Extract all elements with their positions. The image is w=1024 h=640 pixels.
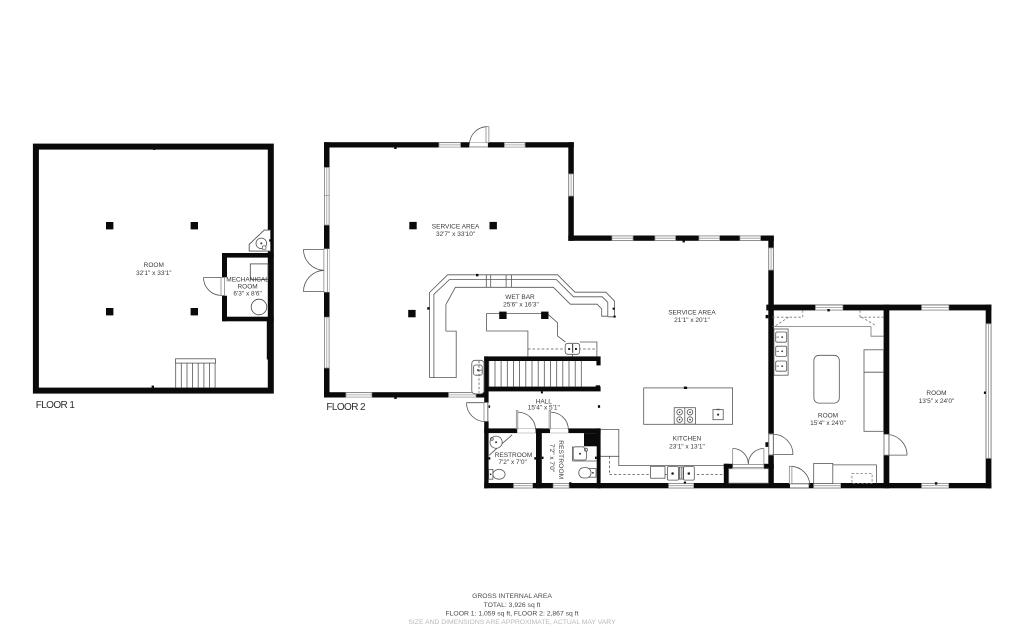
svg-text:FLOOR 1: FLOOR 1 [36,400,76,411]
svg-text:ROOM: ROOM [926,390,946,397]
svg-text:TOTAL: 3,926 sq ft: TOTAL: 3,926 sq ft [484,602,541,609]
svg-text:32'1" x 33'1": 32'1" x 33'1" [136,270,172,277]
svg-text:GROSS INTERNAL AREA: GROSS INTERNAL AREA [472,593,552,600]
svg-text:23'1" x 13'1": 23'1" x 13'1" [669,443,705,450]
svg-text:SIZE AND DIMENSIONS ARE APPROX: SIZE AND DIMENSIONS ARE APPROXIMATE, ACT… [408,619,616,626]
svg-text:WET BAR: WET BAR [505,294,535,301]
svg-text:13'5" x 24'0": 13'5" x 24'0" [919,398,955,405]
svg-text:SERVICE AREA: SERVICE AREA [668,309,716,316]
svg-text:RESTROOM: RESTROOM [557,440,564,479]
svg-text:15'4" x 5'1": 15'4" x 5'1" [528,405,561,412]
svg-text:FLOOR 1: 1,059 sq ft, FLOOR 2:: FLOOR 1: 1,059 sq ft, FLOOR 2: 2,867 sq … [446,610,579,617]
svg-text:SERVICE AREA: SERVICE AREA [432,223,480,230]
svg-text:7'2" x 7'0": 7'2" x 7'0" [498,459,527,466]
svg-text:25'6" x 16'3": 25'6" x 16'3" [503,301,539,308]
svg-text:7'2" x 7'0": 7'2" x 7'0" [548,444,555,473]
svg-text:KITCHEN: KITCHEN [673,436,702,443]
svg-text:ROOM: ROOM [237,283,257,290]
svg-text:15'4" x 24'0": 15'4" x 24'0" [810,420,846,427]
svg-text:ROOM: ROOM [144,262,164,269]
svg-text:6'3" x 8'6": 6'3" x 8'6" [233,290,262,297]
svg-text:FLOOR 2: FLOOR 2 [326,402,366,413]
svg-text:ROOM: ROOM [818,413,838,420]
svg-text:32'7" x 33'10": 32'7" x 33'10" [436,231,476,238]
svg-text:21'1" x 20'1": 21'1" x 20'1" [674,317,710,324]
svg-text:RESTROOM: RESTROOM [495,452,533,459]
